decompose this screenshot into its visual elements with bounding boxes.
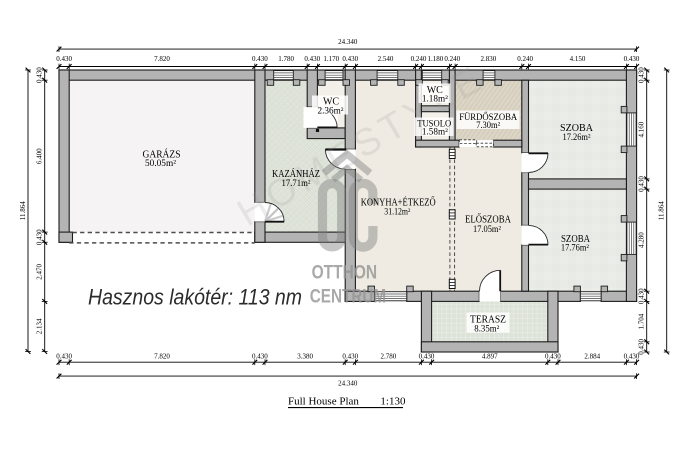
svg-text:17.05m²: 17.05m² — [473, 224, 501, 234]
svg-text:4.280: 4.280 — [638, 232, 646, 248]
svg-text:1.170: 1.170 — [323, 55, 339, 63]
svg-text:11.864: 11.864 — [658, 201, 666, 220]
svg-text:0.430: 0.430 — [638, 67, 646, 83]
svg-text:1.780: 1.780 — [278, 55, 294, 63]
svg-text:0.430: 0.430 — [545, 353, 561, 361]
svg-text:0.430: 0.430 — [342, 55, 358, 63]
svg-text:0.240: 0.240 — [517, 55, 533, 63]
svg-text:31.12m²: 31.12m² — [384, 206, 410, 216]
svg-text:11.864: 11.864 — [19, 201, 27, 220]
svg-text:4.150: 4.150 — [570, 55, 586, 63]
svg-text:0.240: 0.240 — [444, 55, 460, 63]
svg-text:0.240: 0.240 — [411, 55, 427, 63]
svg-text:OTTHON: OTTHON — [312, 262, 378, 283]
svg-text:2.470: 2.470 — [36, 264, 44, 280]
svg-text:2.884: 2.884 — [584, 353, 600, 361]
svg-text:4.160: 4.160 — [638, 121, 646, 137]
svg-text:7.820: 7.820 — [154, 353, 170, 361]
svg-text:8.35m²: 8.35m² — [474, 323, 499, 333]
svg-text:1.704: 1.704 — [638, 313, 646, 329]
svg-text:24.340: 24.340 — [338, 38, 358, 46]
svg-text:2.780: 2.780 — [381, 353, 397, 361]
svg-text:1:130: 1:130 — [380, 395, 406, 407]
svg-text:2.540: 2.540 — [378, 55, 394, 63]
svg-text:2.36m²: 2.36m² — [318, 105, 344, 115]
svg-text:CENTRUM: CENTRUM — [310, 286, 387, 307]
svg-text:1.58m²: 1.58m² — [422, 127, 448, 137]
svg-text:0.430: 0.430 — [419, 353, 435, 361]
svg-text:7.30m²: 7.30m² — [476, 120, 500, 130]
svg-text:24.340: 24.340 — [338, 379, 358, 387]
svg-text:3.380: 3.380 — [297, 353, 313, 361]
svg-text:17.76m²: 17.76m² — [561, 243, 589, 253]
svg-text:0.430: 0.430 — [56, 353, 72, 361]
svg-text:0.430: 0.430 — [36, 229, 44, 245]
svg-text:Full House Plan: Full House Plan — [288, 395, 359, 407]
svg-text:1.180: 1.180 — [428, 55, 444, 63]
svg-text:0.430: 0.430 — [342, 353, 358, 361]
svg-text:4.897: 4.897 — [482, 353, 498, 361]
svg-text:17.26m²: 17.26m² — [563, 132, 591, 142]
svg-text:0.430: 0.430 — [252, 55, 268, 63]
svg-text:1.18m²: 1.18m² — [422, 94, 448, 104]
svg-text:0.430: 0.430 — [638, 339, 646, 355]
svg-text:7.820: 7.820 — [154, 55, 170, 63]
svg-text:2.134: 2.134 — [36, 318, 44, 334]
svg-text:0.430: 0.430 — [56, 55, 72, 63]
svg-text:0.430: 0.430 — [624, 55, 640, 63]
svg-text:6.400: 6.400 — [36, 148, 44, 164]
svg-text:Hasznos lakótér: 113 nm: Hasznos lakótér: 113 nm — [88, 285, 302, 310]
svg-text:50.05m²: 50.05m² — [145, 158, 176, 168]
svg-text:0.430: 0.430 — [304, 55, 320, 63]
svg-text:17.71m²: 17.71m² — [282, 178, 311, 188]
svg-text:0.430: 0.430 — [638, 176, 646, 192]
svg-text:0.430: 0.430 — [36, 67, 44, 83]
svg-text:0.430: 0.430 — [252, 353, 268, 361]
svg-text:2.830: 2.830 — [481, 55, 497, 63]
svg-text:0.430: 0.430 — [638, 288, 646, 304]
